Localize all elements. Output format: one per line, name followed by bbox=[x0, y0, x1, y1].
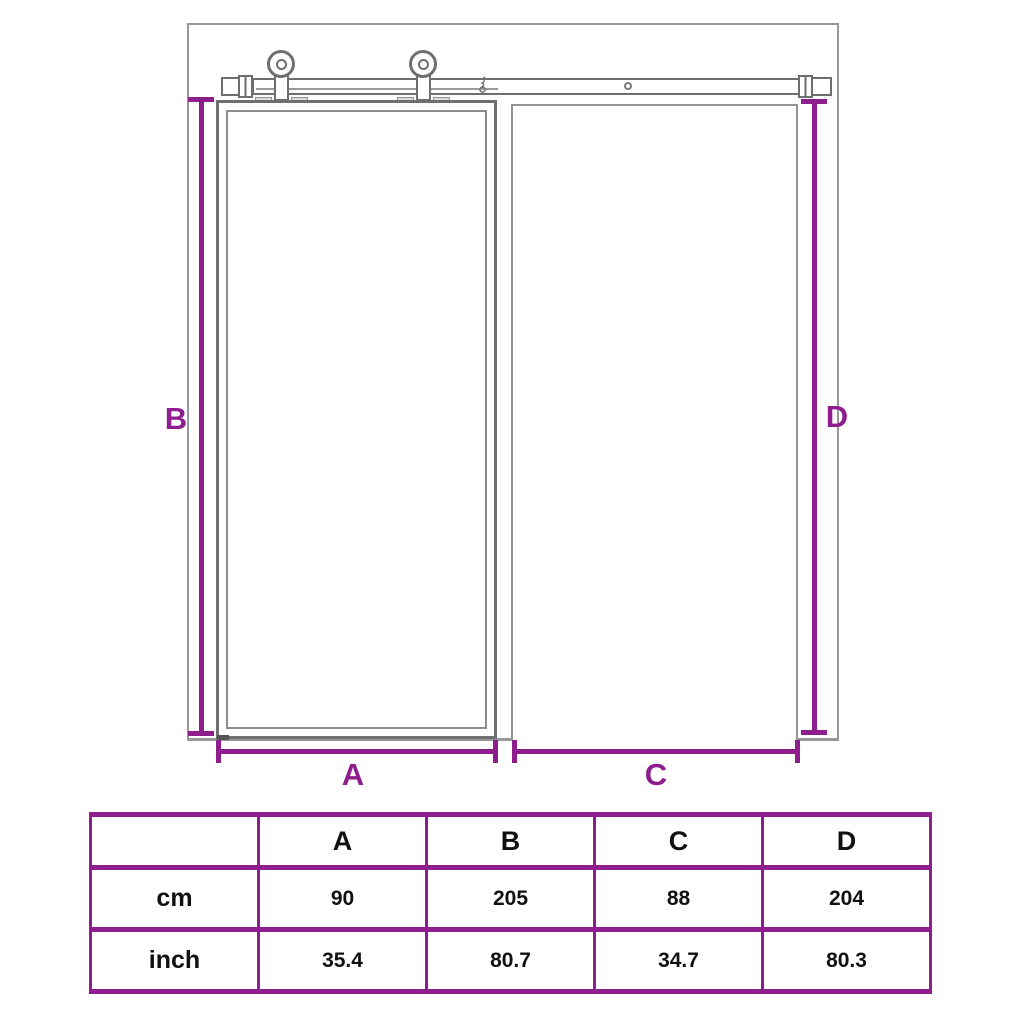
dimension-c-tick-right bbox=[795, 740, 800, 763]
dimension-a-tick-right bbox=[493, 740, 498, 763]
value-cm-d: 204 bbox=[763, 868, 931, 930]
door-panel bbox=[216, 100, 497, 739]
rail-track-line bbox=[256, 88, 498, 90]
dimension-d-cap-top bbox=[801, 99, 827, 104]
table-row-cm: cm 90 205 88 204 bbox=[91, 868, 931, 930]
roller-hub-left bbox=[276, 59, 287, 70]
value-inch-d: 80.3 bbox=[763, 930, 931, 992]
dimension-c-line bbox=[512, 749, 800, 754]
rail-screw-detail-icon bbox=[476, 76, 490, 94]
row-label-cm: cm bbox=[91, 868, 259, 930]
value-cm-b: 205 bbox=[427, 868, 595, 930]
table-header-blank bbox=[91, 815, 259, 868]
roller-wheel-right bbox=[409, 50, 437, 78]
dimension-c-tick-left bbox=[512, 740, 517, 763]
doorway-opening bbox=[511, 104, 798, 741]
dimension-d-line bbox=[812, 101, 817, 735]
dimension-b-label: B bbox=[160, 401, 192, 437]
table-row-inch: inch 35.4 80.7 34.7 80.3 bbox=[91, 930, 931, 992]
dimension-b-line bbox=[199, 99, 204, 736]
row-label-inch: inch bbox=[91, 930, 259, 992]
value-cm-a: 90 bbox=[259, 868, 427, 930]
dimension-d-cap-bottom bbox=[801, 730, 827, 735]
rail-end-ring-left bbox=[238, 75, 253, 98]
dimension-a-label: A bbox=[333, 757, 373, 793]
table-header-row: A B C D bbox=[91, 815, 931, 868]
door-panel-inner-edge bbox=[226, 110, 487, 729]
table-header-b: B bbox=[427, 815, 595, 868]
dimension-a-line bbox=[216, 749, 498, 754]
value-inch-a: 35.4 bbox=[259, 930, 427, 992]
value-inch-b: 80.7 bbox=[427, 930, 595, 992]
dimension-b-cap-top bbox=[188, 97, 214, 102]
product-dimension-diagram: B D A C A B C D cm 90 205 88 204 inch 35… bbox=[0, 0, 1024, 1024]
value-inch-c: 34.7 bbox=[595, 930, 763, 992]
dimensions-table: A B C D cm 90 205 88 204 inch 35.4 80.7 … bbox=[89, 812, 932, 994]
value-cm-c: 88 bbox=[595, 868, 763, 930]
table-header-a: A bbox=[259, 815, 427, 868]
rail-end-cap-right bbox=[811, 77, 832, 96]
roller-hub-right bbox=[418, 59, 429, 70]
dimension-d-label: D bbox=[820, 399, 854, 435]
sliding-rail bbox=[252, 78, 800, 95]
dimension-a-tick-left bbox=[216, 740, 221, 763]
table-header-d: D bbox=[763, 815, 931, 868]
table-header-c: C bbox=[595, 815, 763, 868]
rail-mounting-hole bbox=[624, 82, 632, 90]
dimension-c-label: C bbox=[636, 757, 676, 793]
roller-wheel-left bbox=[267, 50, 295, 78]
dimension-b-cap-bottom bbox=[188, 731, 214, 736]
